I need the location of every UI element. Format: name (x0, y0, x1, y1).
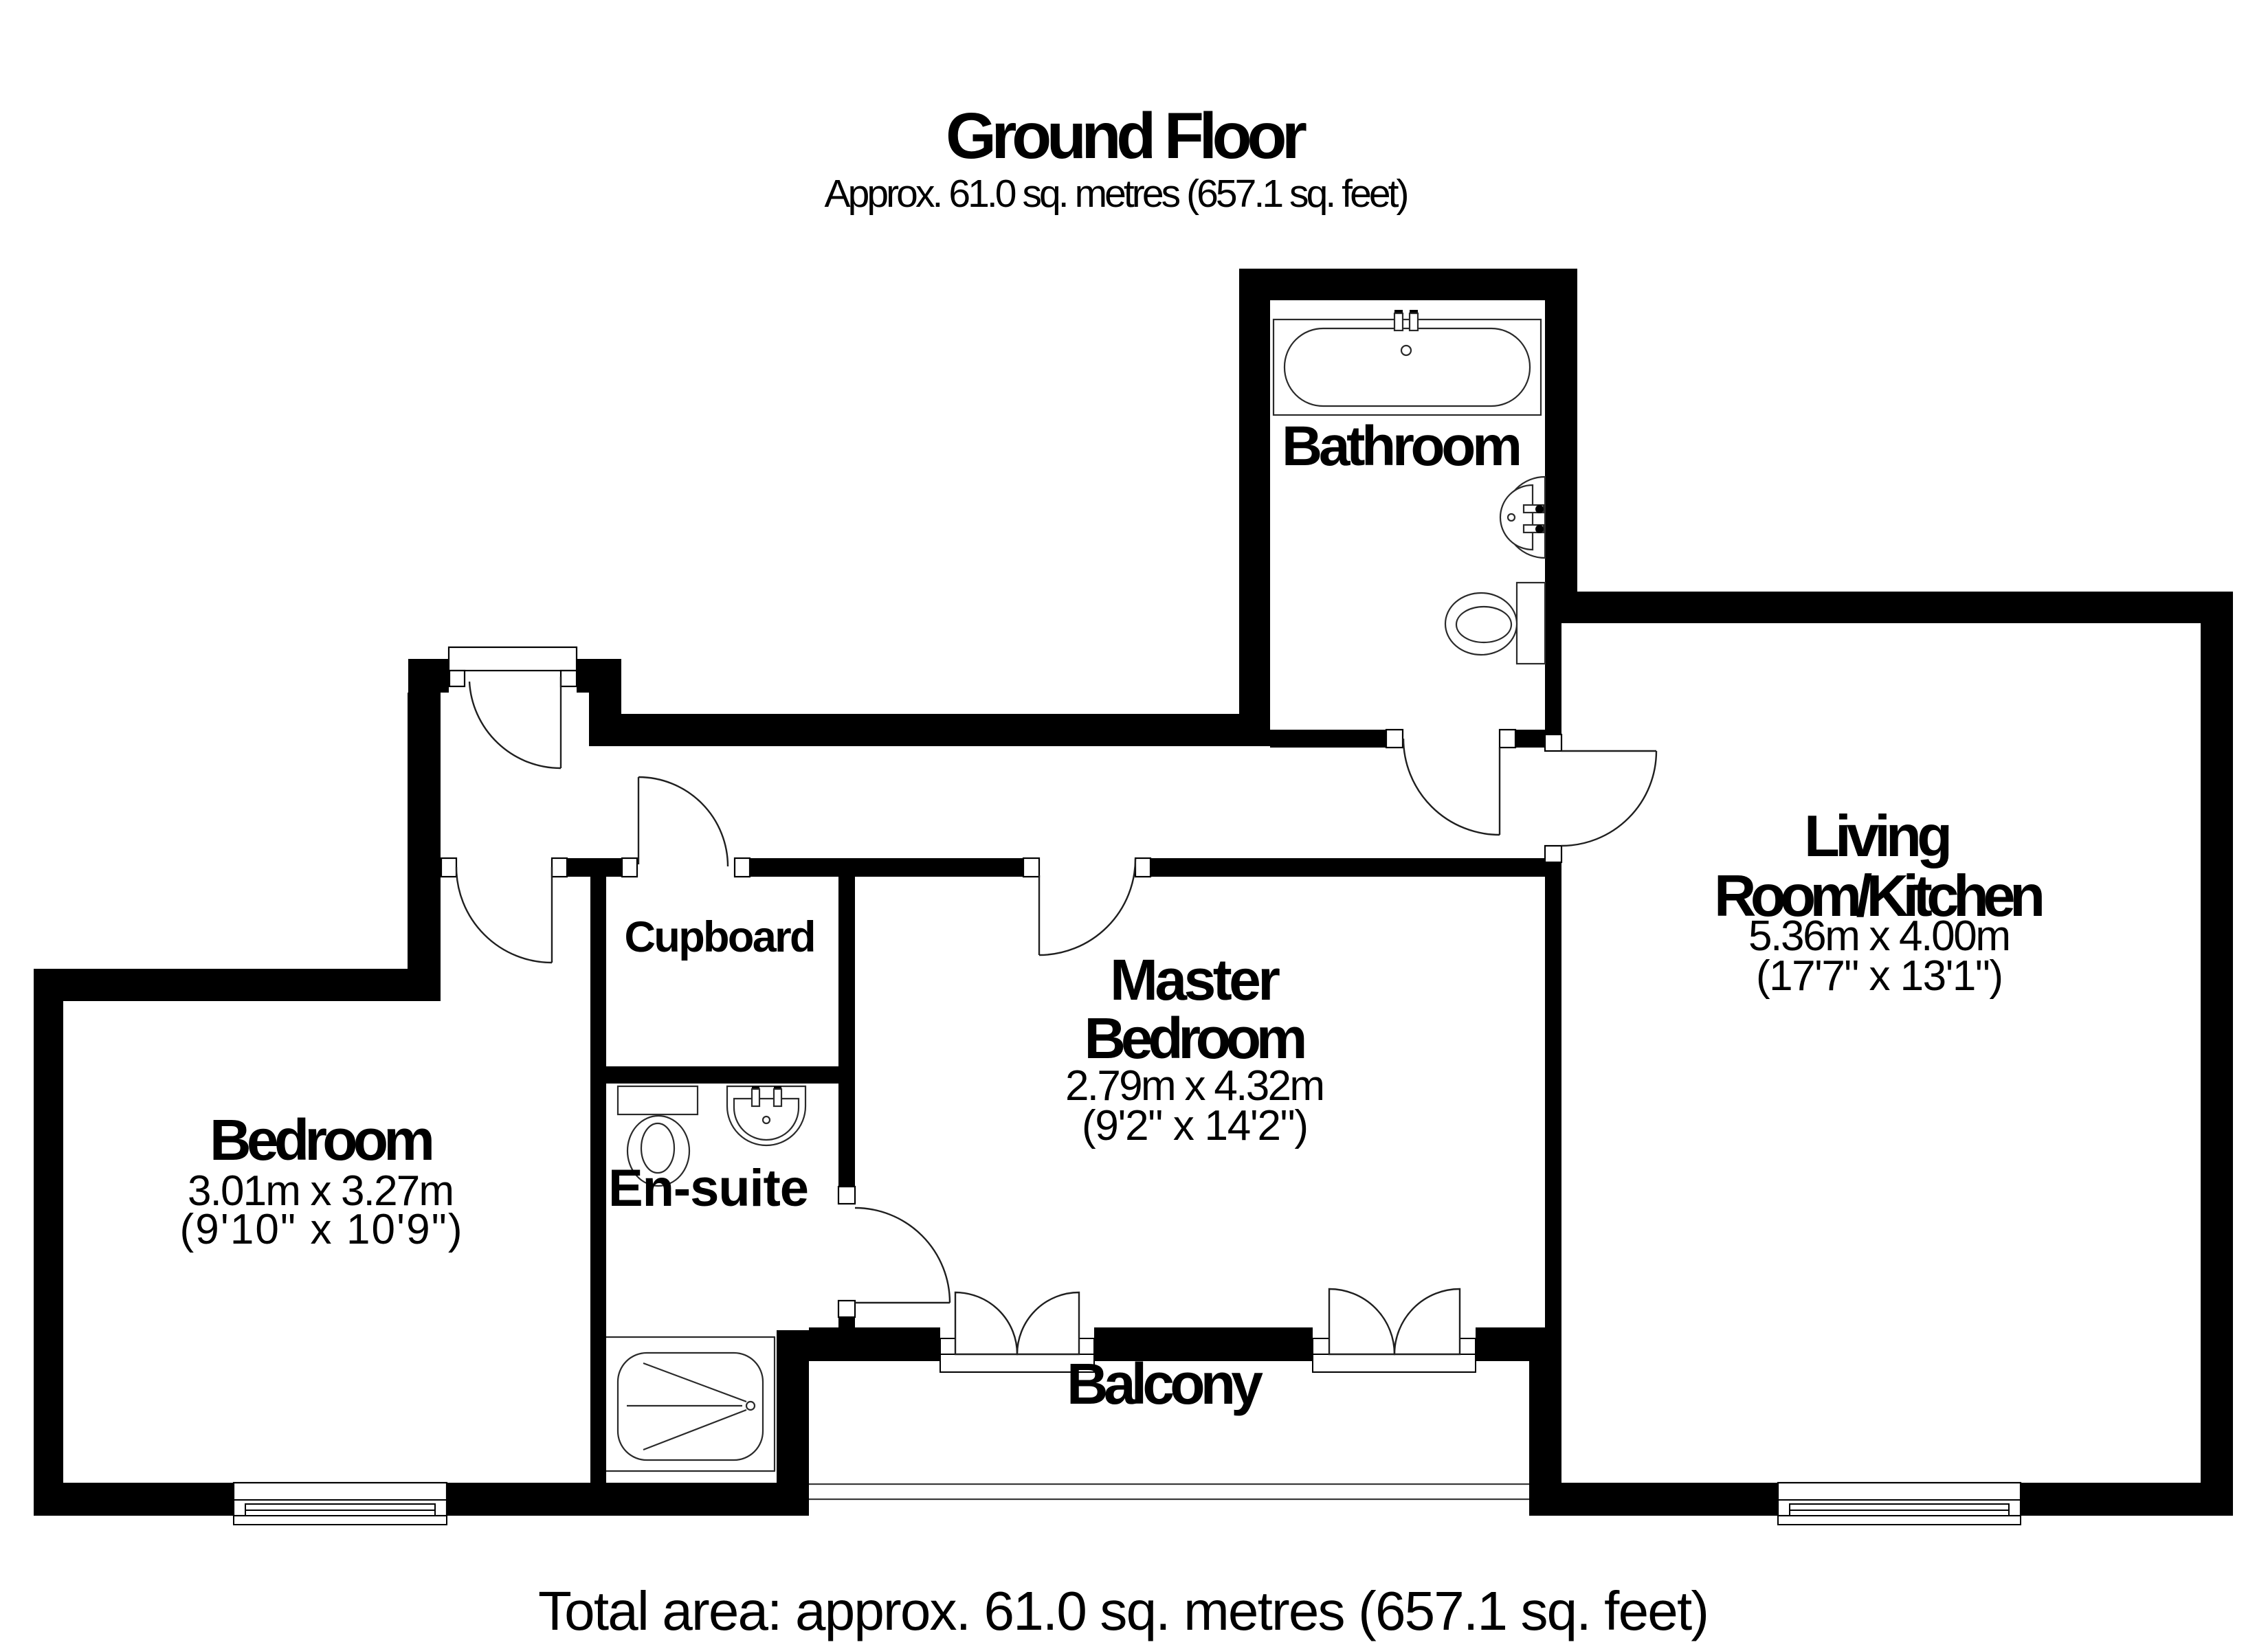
svg-text:Total area: approx. 61.0 sq. m: Total area: approx. 61.0 sq. metres (657… (538, 1580, 1709, 1641)
svg-text:Bathroom: Bathroom (1282, 415, 1522, 478)
svg-text:Bedroom: Bedroom (1085, 1006, 1308, 1070)
svg-text:Approx. 61.0 sq. metres (657.1: Approx. 61.0 sq. metres (657.1 sq. feet) (825, 172, 1410, 216)
svg-text:Ground Floor: Ground Floor (946, 100, 1307, 172)
svg-text:(9'10" x 10'9"): (9'10" x 10'9") (180, 1206, 463, 1253)
svg-text:(9'2" x 14'2"): (9'2" x 14'2") (1082, 1102, 1309, 1149)
svg-text:Cupboard: Cupboard (625, 913, 816, 961)
svg-text:Bedroom: Bedroom (210, 1108, 435, 1172)
svg-text:En-suite: En-suite (608, 1159, 809, 1218)
svg-text:(17'7" x 13'1"): (17'7" x 13'1") (1756, 952, 2003, 1000)
svg-text:Balcony: Balcony (1067, 1351, 1263, 1416)
svg-text:Living: Living (1804, 804, 1953, 869)
svg-text:Master: Master (1110, 947, 1280, 1012)
